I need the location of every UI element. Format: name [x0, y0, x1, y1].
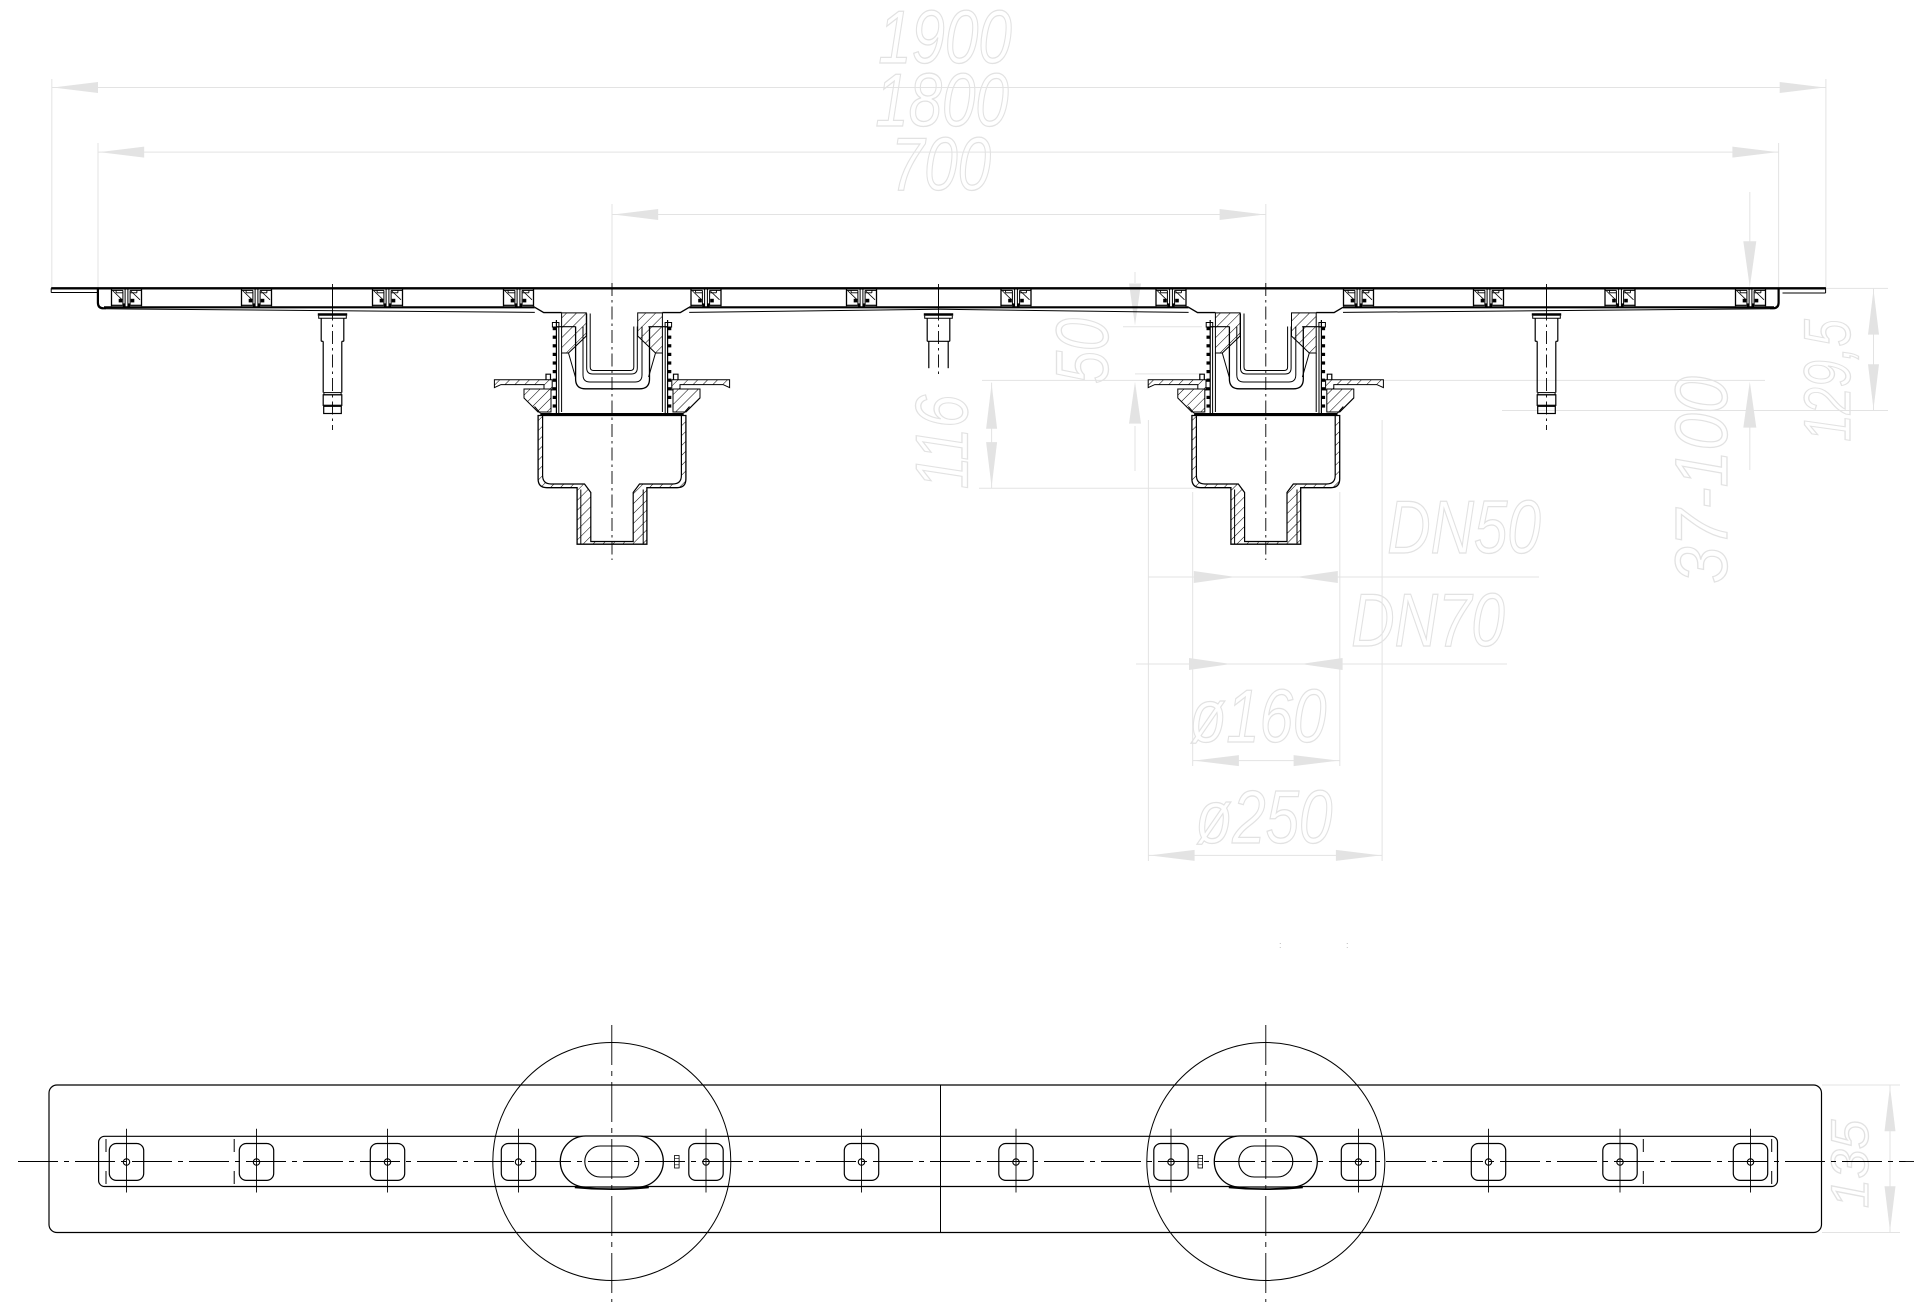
svg-text:DN70: DN70 — [1351, 580, 1505, 663]
svg-text:50: 50 — [1042, 318, 1125, 384]
svg-text:116: 116 — [901, 394, 984, 489]
svg-text:ø160: ø160 — [1190, 676, 1327, 759]
svg-text:135: 135 — [1821, 1119, 1880, 1208]
svg-text:DN50: DN50 — [1387, 487, 1541, 570]
svg-text:ø250: ø250 — [1196, 777, 1333, 860]
svg-text::: : — [1279, 940, 1282, 950]
svg-text:129,5: 129,5 — [1791, 319, 1865, 442]
svg-text:37-100: 37-100 — [1660, 376, 1743, 583]
svg-text:700: 700 — [891, 124, 991, 207]
svg-text::: : — [1346, 940, 1349, 950]
